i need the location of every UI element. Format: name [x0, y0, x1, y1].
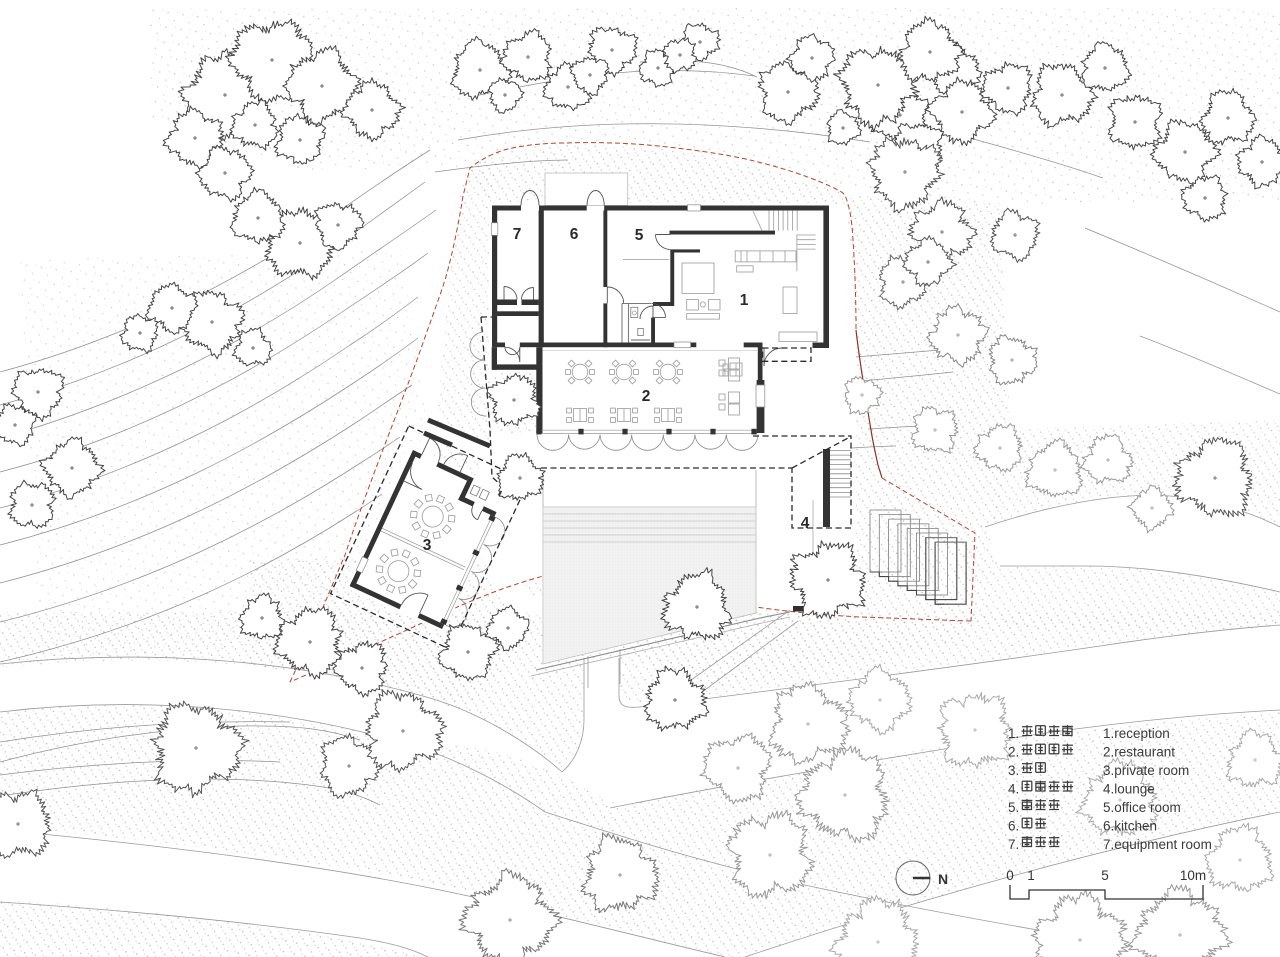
svg-text:2: 2 [642, 388, 651, 405]
svg-text:6: 6 [570, 226, 579, 243]
svg-text:2.restaurant: 2.restaurant [1103, 745, 1175, 760]
svg-text:3.: 3. [1008, 763, 1019, 778]
svg-text:3: 3 [423, 537, 432, 554]
svg-text:6.: 6. [1008, 819, 1019, 834]
svg-text:4.: 4. [1008, 782, 1019, 797]
svg-text:0: 0 [1006, 868, 1014, 883]
svg-text:N: N [938, 871, 948, 887]
svg-text:7.: 7. [1008, 837, 1019, 852]
svg-text:4: 4 [801, 515, 810, 532]
svg-text:7.equipment room: 7.equipment room [1103, 837, 1212, 852]
svg-text:1.reception: 1.reception [1103, 726, 1170, 741]
svg-text:3.private room: 3.private room [1103, 763, 1189, 778]
svg-text:2.: 2. [1008, 745, 1019, 760]
svg-text:7: 7 [513, 226, 522, 243]
svg-text:5: 5 [635, 227, 644, 244]
svg-text:6.kitchen: 6.kitchen [1103, 819, 1157, 834]
svg-text:5.office room: 5.office room [1103, 800, 1181, 815]
svg-text:5: 5 [1101, 868, 1109, 883]
svg-text:5.: 5. [1008, 800, 1019, 815]
svg-text:10m: 10m [1180, 868, 1206, 883]
svg-text:1.: 1. [1008, 726, 1019, 741]
svg-text:4.lounge: 4.lounge [1103, 782, 1155, 797]
svg-text:1: 1 [1027, 868, 1035, 883]
svg-text:1: 1 [740, 292, 749, 309]
